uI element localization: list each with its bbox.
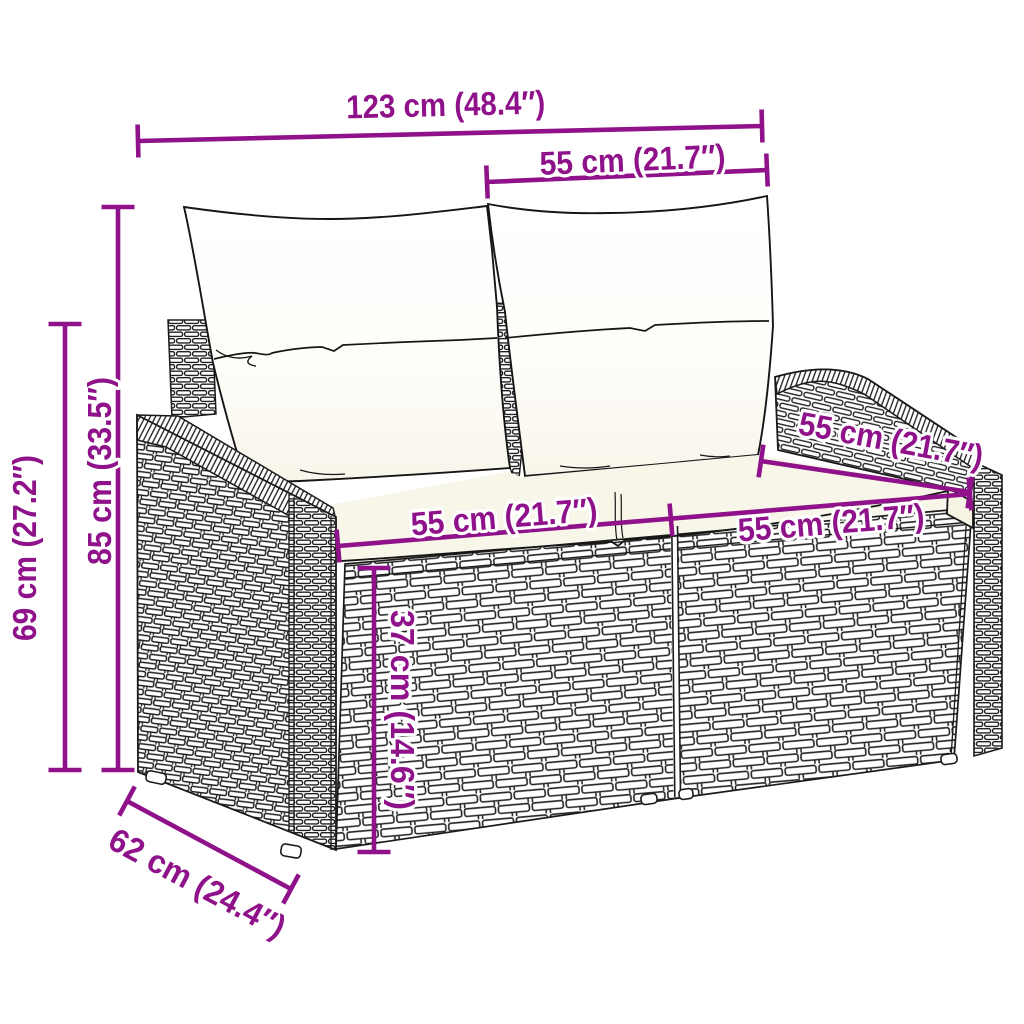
svg-text:69 cm (27.2″): 69 cm (27.2″) bbox=[6, 455, 43, 641]
svg-text:85 cm (33.5″): 85 cm (33.5″) bbox=[81, 377, 118, 565]
svg-text:37 cm (14.6″): 37 cm (14.6″) bbox=[384, 610, 421, 810]
svg-text:55 cm (21.7″): 55 cm (21.7″) bbox=[539, 137, 726, 182]
svg-text:123 cm (48.4″): 123 cm (48.4″) bbox=[346, 84, 546, 126]
